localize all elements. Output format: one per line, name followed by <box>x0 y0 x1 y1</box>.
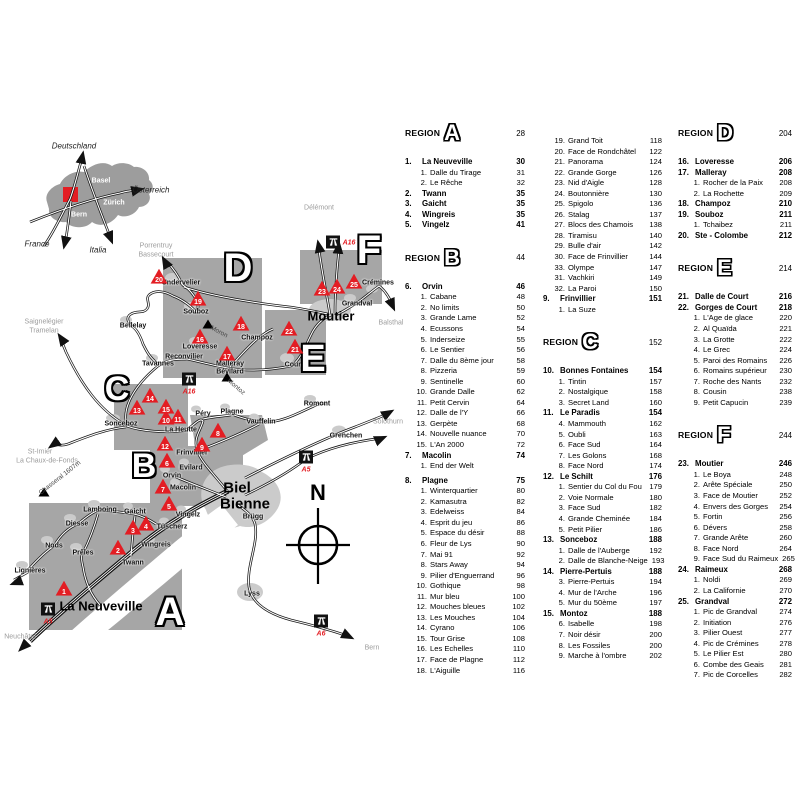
town-label: Gaicht <box>124 509 146 516</box>
overview-map: N UndervelierSoubozBellelayLoveresseReco… <box>0 0 400 800</box>
route-row: 1. Winterquartier 80 <box>405 486 525 497</box>
motorway-badge <box>41 603 55 616</box>
map-region-letter: B <box>132 449 157 483</box>
route-row: 16. Les Echelles 110 <box>405 644 525 655</box>
map-region-letter: E <box>300 340 325 378</box>
region-header: REGION B 44 <box>405 243 525 273</box>
region-letter: E <box>717 257 732 279</box>
inset-city-label: Basel <box>92 178 111 185</box>
motorway-badge <box>299 451 313 464</box>
country-label: Italia <box>90 246 107 255</box>
offmap-destination-label: Bassecourt <box>138 252 173 259</box>
crag-row: 7. Macolin 74 <box>405 451 525 462</box>
crag-row: 13. Sonceboz 188 <box>543 535 662 546</box>
route-row: 11. Petit Cervin 64 <box>405 398 525 409</box>
route-row: 3. Face de Moutier 252 <box>678 491 792 502</box>
country-label: Österreich <box>133 186 170 195</box>
town-label: Bellelay <box>120 323 146 330</box>
route-row: 1. Dalle du Tirage 31 <box>405 168 525 179</box>
switzerland-outline <box>46 163 152 227</box>
town-label: Diesse <box>66 521 89 528</box>
route-row: 6. Combe des Geais 281 <box>678 660 792 671</box>
crag-row: 12. Le Schilt 176 <box>543 472 662 483</box>
route-row: 6. Dévers 258 <box>678 523 792 534</box>
index-column-3: REGION D 204 16. Loveresse 206 17. Malle… <box>678 118 792 681</box>
route-row: 7. Roche des Nants 232 <box>678 377 792 388</box>
town-label: Grenchen <box>330 433 363 440</box>
town-label: Vingelz <box>176 512 200 519</box>
crag-marker: 24 <box>329 279 346 294</box>
route-row: 1. L'Age de glace 220 <box>678 313 792 324</box>
route-row: 13. Gerpète 68 <box>405 419 525 430</box>
region-page: 244 <box>779 431 792 440</box>
motorway-number-label: A6 <box>317 631 326 638</box>
crag-row: 19. Souboz 211 <box>678 210 792 221</box>
route-row: 4. Esprit du jeu 86 <box>405 518 525 529</box>
route-row: 5. Inderseize 55 <box>405 335 525 346</box>
route-row: 1. Le Boya 248 <box>678 470 792 481</box>
town-label: Lamboing <box>83 507 116 514</box>
route-row: 2. No limits 50 <box>405 303 525 314</box>
route-row: 2. Dalle de Blanche-Neige 193 <box>543 556 662 567</box>
route-row: 4. Ecussons 54 <box>405 324 525 335</box>
route-row: 5. Espace du désir 88 <box>405 528 525 539</box>
offmap-destination-label: Délémont <box>304 205 334 212</box>
town-label: Loveresse <box>183 344 218 351</box>
route-row: 5. Le Pilier Est 280 <box>678 649 792 660</box>
map-region-letter: A <box>156 592 185 632</box>
city-label: Biel <box>223 480 251 497</box>
crag-row: 22. Gorges de Court 218 <box>678 303 792 314</box>
offmap-destination-label: Tramelan <box>29 328 58 335</box>
crag-row: 4. Wingreis 35 <box>405 210 525 221</box>
crag-marker: 25 <box>346 274 363 289</box>
town-label: La Heutte <box>165 427 197 434</box>
route-row: 4. Grande Cheminée 184 <box>543 514 662 525</box>
route-row: 4. Pic de Crémines 278 <box>678 639 792 650</box>
route-row: 2. Al Quaïda 221 <box>678 324 792 335</box>
route-row: 2. Le Rêche 32 <box>405 178 525 189</box>
town-label: Wingreis <box>141 542 171 549</box>
region-letter: A <box>444 122 460 144</box>
crag-row: 3. Gaicht 35 <box>405 199 525 210</box>
route-row: 8. Pizzeria 59 <box>405 366 525 377</box>
region-header: REGION D 204 <box>678 118 792 148</box>
town-label: Crémines <box>362 280 394 287</box>
route-row: 6. Face Sud 164 <box>543 440 662 451</box>
motorway-number-label: A5 <box>302 467 311 474</box>
route-row: 8. Les Fossiles 200 <box>543 641 662 652</box>
route-row: 1. Tchaibez 211 <box>678 220 792 231</box>
route-row: 14. Nouvelle nuance 70 <box>405 429 525 440</box>
crag-row: 6. Orvin 46 <box>405 282 525 293</box>
route-row: 7. Mai 91 92 <box>405 550 525 561</box>
route-row: 8. Face Nord 264 <box>678 544 792 555</box>
offmap-destination-label: St-Imier <box>28 449 53 456</box>
crag-marker: 14 <box>142 388 159 403</box>
town-label: Lyss <box>244 591 260 598</box>
motorway-icon <box>184 374 195 385</box>
offmap-destination-label: La Chaux-de-Fonds <box>16 458 78 465</box>
route-row: 6. Fleur de Lys 90 <box>405 539 525 550</box>
town-label: Twann <box>122 560 144 567</box>
crag-row: 1. La Neuveville 30 <box>405 157 525 168</box>
town-label: Plagne <box>221 409 244 416</box>
route-row: 32. La Paroi 150 <box>543 284 662 295</box>
crag-row: 24. Raimeux 268 <box>678 565 792 576</box>
route-row: 2. Nostalgique 158 <box>543 387 662 398</box>
town-label: Brügg <box>243 514 264 521</box>
region-page: 152 <box>649 338 662 347</box>
town-label: Evilard <box>179 465 202 472</box>
town-label: Tavannes <box>142 361 174 368</box>
route-row: 2. La Rochette 209 <box>678 189 792 200</box>
crag-row: 8. Plagne 75 <box>405 476 525 487</box>
route-row: 8. Stars Away 94 <box>405 560 525 571</box>
route-row: 9. Marche à l'ombre 202 <box>543 651 662 662</box>
route-row: 33. Olympe 147 <box>543 263 662 274</box>
route-row: 29. Bulle d'air 142 <box>543 241 662 252</box>
crag-marker: 19 <box>190 291 207 306</box>
route-row: 1. Tintin 157 <box>543 377 662 388</box>
route-row: 2. Arête Spéciale 250 <box>678 480 792 491</box>
route-row: 7. Dalle du 8ème jour 58 <box>405 356 525 367</box>
offmap-destination-label: Neuchâtel <box>4 634 36 641</box>
route-row: 3. Grande Lame 52 <box>405 313 525 324</box>
motorway-number-label: A16 <box>183 389 196 396</box>
town-label: Macolin <box>170 485 196 492</box>
route-row: 7. Grande Arête 260 <box>678 533 792 544</box>
town-label: Tüscherz <box>157 524 188 531</box>
motorway-badge <box>326 236 340 249</box>
crag-marker: 16 <box>192 329 209 344</box>
route-row: 3. Face Sud 182 <box>543 503 662 514</box>
town-label: Sonceboz <box>104 421 137 428</box>
country-label: Deutschland <box>52 142 96 151</box>
crag-marker: 6 <box>159 453 176 468</box>
city-label: Bienne <box>220 496 270 513</box>
map-region-letter: C <box>105 372 130 406</box>
region-page: 204 <box>779 129 792 138</box>
crag-row: 2. Twann 35 <box>405 189 525 200</box>
route-row: 1. Dalle de l'Auberge 192 <box>543 546 662 557</box>
route-row: 9. Pilier d'Enguerrand 96 <box>405 571 525 582</box>
index-column-1: REGION A 28 1. La Neuveville 30 1. Dalle… <box>405 118 525 676</box>
motorway-badge <box>182 373 196 386</box>
crag-row: 15. Montoz 188 <box>543 609 662 620</box>
region-header: REGION C 152 <box>543 327 662 357</box>
offmap-destination-label: Saignelégier <box>25 319 64 326</box>
region-page: 44 <box>516 253 525 262</box>
crag-row: 9. Frinvillier 151 <box>543 294 662 305</box>
motorway-number-label: A16 <box>343 240 356 247</box>
route-row: 3. Secret Land 160 <box>543 398 662 409</box>
town-label: Grandval <box>342 301 372 308</box>
compass-icon <box>286 508 350 584</box>
route-row: 19. Grand Toit 118 <box>543 136 662 147</box>
route-row: 1. End der Welt <box>405 461 525 472</box>
route-row: 18. L'Aiguille 116 <box>405 666 525 677</box>
region-header: REGION E 214 <box>678 253 792 283</box>
crag-marker: 8 <box>210 423 227 438</box>
crag-row: 16. Loveresse 206 <box>678 157 792 168</box>
town-label: Bévilard <box>216 369 244 376</box>
crag-marker: 17 <box>219 346 236 361</box>
crag-marker: 1 <box>56 581 73 596</box>
town-label: Vauffelin <box>246 419 275 426</box>
route-row: 5. Petit Pilier 186 <box>543 525 662 536</box>
crag-row: 5. Vingelz 41 <box>405 220 525 231</box>
crag-marker: 15 <box>158 399 175 414</box>
country-label: France <box>25 240 50 249</box>
region-letter: B <box>444 247 460 269</box>
town-label: Romont <box>304 401 330 408</box>
town-label: Undervelier <box>162 280 201 287</box>
city-label: Moutier <box>308 309 355 324</box>
offmap-destination-label: Porrentruy <box>140 243 173 250</box>
crag-marker: 20 <box>151 269 168 284</box>
route-row: 15. Tour Grise 108 <box>405 634 525 645</box>
route-row: 30. Face de Frinvillier 144 <box>543 252 662 263</box>
compass-north-label: N <box>310 480 326 506</box>
guidebook-index-page: N UndervelierSoubozBellelayLoveresseReco… <box>0 0 800 800</box>
route-row: 5. Mur du 50ème 197 <box>543 598 662 609</box>
route-row: 7. Pic de Corcelles 282 <box>678 670 792 681</box>
index-column-2: 19. Grand Toit 118 20. Face de Rondchâte… <box>543 136 662 662</box>
map-region-letter: D <box>224 248 253 288</box>
route-row: 28. Tiramisu 140 <box>543 231 662 242</box>
town-label: Prêles <box>72 550 93 557</box>
crag-row: 21. Dalle de Court 216 <box>678 292 792 303</box>
route-row: 1. Sentier du Col du Fou 179 <box>543 482 662 493</box>
region-page: 28 <box>516 129 525 138</box>
region-letter: F <box>717 424 730 446</box>
motorway-number-label: A5 <box>44 619 53 626</box>
route-row: 17. Face de Plagne 112 <box>405 655 525 666</box>
crag-marker: 7 <box>155 479 172 494</box>
crag-marker: 21 <box>287 339 304 354</box>
route-row: 2. Kamasutra 82 <box>405 497 525 508</box>
route-row: 1. Pic de Grandval 274 <box>678 607 792 618</box>
crag-row: 14. Pierre-Pertuis 188 <box>543 567 662 578</box>
route-row: 6. Le Sentier 56 <box>405 345 525 356</box>
town-label: Nods <box>45 543 63 550</box>
route-row: 5. Fortin 256 <box>678 512 792 523</box>
region-page: 214 <box>779 264 792 273</box>
crag-marker: 22 <box>281 321 298 336</box>
route-row: 9. Sentinelle 60 <box>405 377 525 388</box>
route-row: 15. L'An 2000 72 <box>405 440 525 451</box>
route-row: 9. Face Sud du Raimeux 265 <box>678 554 792 565</box>
region-header: REGION F 244 <box>678 420 792 450</box>
city-label: La Neuveville <box>59 599 142 614</box>
motorway-icon <box>316 616 327 627</box>
route-row: 31. Vachkiri 149 <box>543 273 662 284</box>
crag-row: 10. Bonnes Fontaines 154 <box>543 366 662 377</box>
route-row: 5. Oubli 163 <box>543 430 662 441</box>
route-row: 27. Blocs des Chamois 138 <box>543 220 662 231</box>
motorway-icon <box>301 452 312 463</box>
town-label: Péry <box>195 411 210 418</box>
route-row: 4. Envers des Gorges 254 <box>678 502 792 513</box>
route-row: 4. Mammouth 162 <box>543 419 662 430</box>
town-label: Champoz <box>241 335 273 342</box>
inset-city-label: Bern <box>71 212 87 219</box>
region-header: REGION A 28 <box>405 118 525 148</box>
route-row: 9. Petit Capucin 239 <box>678 398 792 409</box>
crag-marker: 18 <box>233 316 250 331</box>
route-row: 14. Cyrano 106 <box>405 623 525 634</box>
route-row: 7. Noir désir 200 <box>543 630 662 641</box>
crag-row: 18. Champoz 210 <box>678 199 792 210</box>
route-row: 6. Isabelle 198 <box>543 619 662 630</box>
route-row: 4. Mur de l'Arche 196 <box>543 588 662 599</box>
route-row: 2. La Californie 270 <box>678 586 792 597</box>
motorway-icon <box>43 604 54 615</box>
map-base-graphics <box>0 0 400 800</box>
route-row: 3. Pilier Ouest 277 <box>678 628 792 639</box>
route-row: 4. Le Grec 224 <box>678 345 792 356</box>
route-row: 24. Boutonnière 130 <box>543 189 662 200</box>
route-row: 23. Nid d'Aigle 128 <box>543 178 662 189</box>
route-row: 26. Stalag 137 <box>543 210 662 221</box>
crag-marker: 5 <box>161 496 178 511</box>
town-label: Reconvilier <box>165 354 203 361</box>
town-label: Lignières <box>14 568 45 575</box>
route-row: 6. Romains supérieur 230 <box>678 366 792 377</box>
route-row: 3. Edelweiss 84 <box>405 507 525 518</box>
route-row: 3. Pierre-Pertuis 194 <box>543 577 662 588</box>
route-row: 22. Grande Gorge 126 <box>543 168 662 179</box>
region-letter: D <box>717 122 733 144</box>
route-row: 2. Voie Normale 180 <box>543 493 662 504</box>
crag-row: 17. Malleray 208 <box>678 168 792 179</box>
route-row: 2. Initiation 276 <box>678 618 792 629</box>
inset-city-label: Zürich <box>103 200 124 207</box>
crag-row: 23. Moutier 246 <box>678 459 792 470</box>
crag-marker: 4 <box>138 516 155 531</box>
crag-marker: 2 <box>110 540 127 555</box>
route-row: 5. Paroi des Romains 226 <box>678 356 792 367</box>
route-row: 7. Les Golons 168 <box>543 451 662 462</box>
route-row: 12. Mouches bleues 102 <box>405 602 525 613</box>
route-row: 8. Cousin 238 <box>678 387 792 398</box>
crag-row: 20. Ste - Colombe 212 <box>678 231 792 242</box>
offmap-destination-label: Solothurn <box>373 419 403 426</box>
crag-marker: 12 <box>157 436 174 451</box>
route-row: 1. Cabane 48 <box>405 292 525 303</box>
region-letter: C <box>582 331 598 353</box>
offmap-destination-label: Bern <box>365 645 380 652</box>
route-row: 12. Dalle de l'Y 66 <box>405 408 525 419</box>
route-row: 1. Rocher de la Paix 208 <box>678 178 792 189</box>
route-row: 20. Face de Rondchâtel 122 <box>543 147 662 158</box>
route-row: 1. La Suze <box>543 305 662 316</box>
route-row: 1. Noldi 269 <box>678 575 792 586</box>
route-row: 21. Panorama 124 <box>543 157 662 168</box>
route-row: 8. Face Nord 174 <box>543 461 662 472</box>
map-region-letter: F <box>357 230 381 270</box>
route-row: 10. Gothique 98 <box>405 581 525 592</box>
route-row: 10. Grande Dalle 62 <box>405 387 525 398</box>
crag-row: 11. Le Paradis 154 <box>543 408 662 419</box>
crag-marker: 9 <box>194 437 211 452</box>
route-row: 13. Les Mouches 104 <box>405 613 525 624</box>
motorway-icon <box>328 237 339 248</box>
crag-row: 25. Grandval 272 <box>678 597 792 608</box>
route-row: 3. La Grotte 222 <box>678 335 792 346</box>
town-label: Souboz <box>183 309 208 316</box>
motorway-badge <box>314 615 328 628</box>
route-row: 25. Spigolo 136 <box>543 199 662 210</box>
route-row: 11. Mur bleu 100 <box>405 592 525 603</box>
offmap-destination-label: Balsthal <box>379 320 404 327</box>
town-label: Malleray <box>216 361 244 368</box>
